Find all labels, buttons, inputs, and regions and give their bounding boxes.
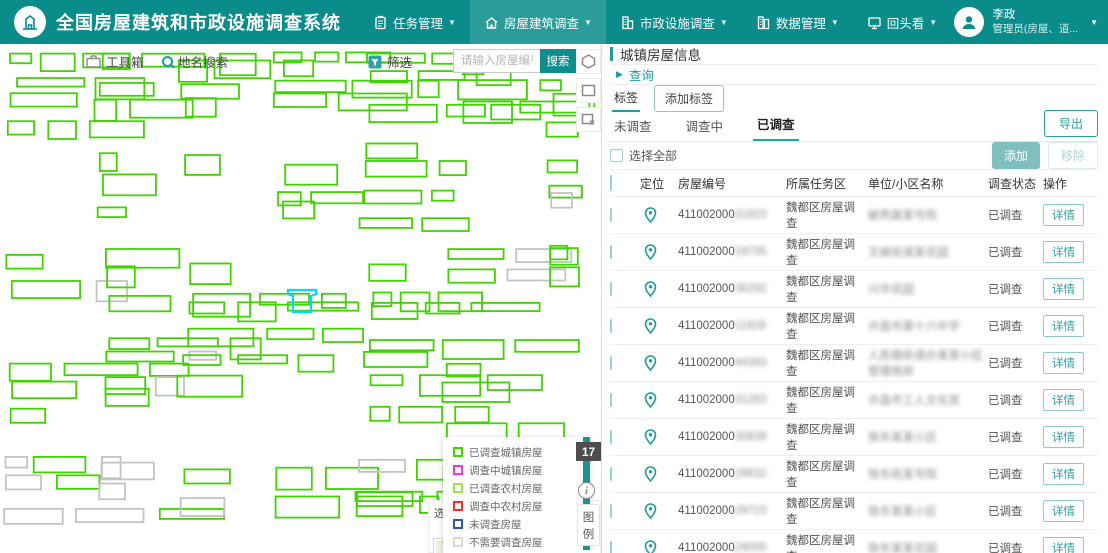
table-row: 41100200044393魏都区房屋调查人民路街道办某某小区管理用房已调查详情: [610, 345, 1098, 382]
tag-row: 标签 添加标签: [610, 85, 1098, 112]
locate-cell: [640, 279, 678, 299]
review-icon: [867, 15, 882, 30]
unit-name-cell: 文峰街道某花园: [868, 242, 988, 262]
chevron-down-icon: ▼: [720, 18, 728, 27]
location-pin-icon[interactable]: [640, 466, 676, 482]
nav-item-label: 房屋建筑调查: [504, 13, 579, 32]
details-button[interactable]: 详情: [1043, 315, 1084, 337]
house-info-panel: 城镇房屋信息 ▶ 查询 标签 添加标签 未调查 调查中 已调查 导出 选择全部 …: [602, 44, 1108, 553]
select-all-row: 选择全部 添加 移除: [610, 142, 1098, 169]
details-button[interactable]: 详情: [1043, 204, 1084, 226]
action-cell: 详情: [1043, 276, 1098, 302]
action-cell: 详情: [1043, 202, 1098, 228]
location-pin-icon[interactable]: [640, 244, 676, 260]
house-number-input[interactable]: [453, 49, 540, 73]
task-area-cell: 魏都区房屋调查: [786, 456, 868, 492]
table-row: 41100200036292魏都区房屋调查兴华花园已调查详情: [610, 271, 1098, 308]
row-checkbox-cell: [610, 503, 640, 519]
house-number-redacted: 30839: [735, 431, 767, 443]
details-button[interactable]: 详情: [1043, 426, 1084, 448]
details-button[interactable]: 详情: [1043, 352, 1084, 374]
status-cell: 已调查: [988, 501, 1043, 521]
legend-item-label: 调查中农村房屋: [469, 499, 543, 514]
column-header: 房屋编号: [678, 173, 786, 194]
legend-toggle-label: 图例: [583, 512, 595, 541]
locate-cell: [640, 390, 678, 410]
action-cell: 详情: [1043, 535, 1098, 553]
house-number-visible: 411002000: [678, 320, 735, 332]
action-cell: 详情: [1043, 498, 1098, 524]
app-header: 全国房屋建筑和市政设施调查系统 任务管理▼房屋建筑调查▼市政设施调查▼数据管理▼…: [0, 0, 1108, 44]
details-button[interactable]: 详情: [1043, 278, 1084, 300]
row-checkbox[interactable]: [610, 541, 612, 553]
house-number-redacted: 36292: [735, 283, 767, 295]
user-name: 李政: [992, 8, 1078, 22]
draw-rectangle-icon[interactable]: [576, 78, 601, 103]
task-area-cell: 魏都区房屋调查: [786, 382, 868, 418]
chevron-right-icon: ▶: [616, 69, 623, 80]
unit-name-cell: 铁东某某花园: [868, 538, 988, 553]
house-number-visible: 411002000: [678, 431, 735, 443]
location-pin-icon[interactable]: [640, 429, 676, 445]
locate-cell: [640, 316, 678, 336]
legend-swatch-icon: [453, 537, 463, 547]
unit-name-cell: 许昌市工人文化宫: [868, 390, 988, 410]
house-number-visible: 411002000: [678, 283, 735, 295]
action-cell: 详情: [1043, 461, 1098, 487]
toolbox-label: 工具箱: [106, 52, 144, 71]
main-nav: 任务管理▼房屋建筑调查▼市政设施调查▼数据管理▼回头看▼: [359, 0, 951, 44]
status-cell: 已调查: [988, 538, 1043, 553]
legend-swatch-icon: [453, 519, 463, 529]
tab-surveying[interactable]: 调查中: [682, 110, 728, 141]
table-row: 41100200031823魏都区房屋调查毓秀路某号院已调查详情: [610, 197, 1098, 234]
task-area-cell: 魏都区房屋调查: [786, 493, 868, 529]
filter-icon: [368, 55, 382, 69]
unit-name-cell: 许昌市第十六中学: [868, 316, 988, 336]
action-cell: 详情: [1043, 424, 1098, 450]
details-button[interactable]: 详情: [1043, 537, 1084, 553]
row-checkbox-cell: [610, 244, 640, 260]
add-tag-button[interactable]: 添加标签: [654, 85, 724, 112]
house-number-redacted: 29723: [735, 505, 767, 517]
row-checkbox[interactable]: [610, 504, 612, 518]
nav-item-2[interactable]: 市政设施调查▼: [606, 0, 742, 44]
legend-swatch-icon: [453, 447, 463, 457]
locate-cell: [640, 538, 678, 553]
action-cell: 详情: [1043, 350, 1098, 376]
location-pin-icon[interactable]: [640, 392, 676, 408]
house-number-cell: 41100200031283: [678, 392, 786, 408]
house-number-visible: 411002000: [678, 394, 735, 406]
nav-item-label: 回头看: [887, 13, 925, 32]
status-tabs: 未调查 调查中 已调查 导出: [610, 112, 1098, 142]
house-number-visible: 411002000: [678, 505, 735, 517]
action-cell: 详情: [1043, 239, 1098, 265]
row-checkbox-cell: [610, 207, 640, 223]
table-row: 41100200029723魏都区房屋调查铁东某某小区已调查详情: [610, 493, 1098, 530]
user-avatar-icon: [954, 7, 984, 37]
house-table: 定位房屋编号所属任务区单位/小区名称调查状态操作41100200031823魏都…: [610, 169, 1098, 553]
status-cell: 已调查: [988, 205, 1043, 225]
clear-selection-icon[interactable]: [576, 107, 601, 132]
column-header: 操作: [1043, 173, 1098, 194]
legend-swatch-icon: [453, 465, 463, 475]
house-number-cell: 41100200036292: [678, 281, 786, 297]
house-icon: [484, 15, 499, 30]
row-checkbox[interactable]: [610, 208, 612, 222]
house-number-redacted: 31823: [735, 209, 767, 221]
table-row: 41100200029000魏都区房屋调查铁东某某花园已调查详情: [610, 530, 1098, 553]
location-pin-icon[interactable]: [640, 540, 676, 553]
house-number-cell: 41100200031823: [678, 207, 786, 223]
column-header: 所属任务区: [786, 173, 868, 194]
house-number-cell: 41100200029000: [678, 540, 786, 553]
table-row: 41100200031283魏都区房屋调查许昌市工人文化宫已调查详情: [610, 382, 1098, 419]
house-number-visible: 411002000: [678, 357, 735, 369]
table-row: 41100200019735魏都区房屋调查文峰街道某花园已调查详情: [610, 234, 1098, 271]
task-area-cell: 魏都区房屋调查: [786, 234, 868, 270]
select-all-label: 选择全部: [629, 147, 677, 164]
tab-surveyed[interactable]: 已调查: [753, 108, 799, 141]
legend-item-label: 已调查城镇房屋: [469, 445, 543, 460]
filter-label: 筛选: [387, 52, 412, 71]
chevron-down-icon: ▼: [584, 18, 592, 27]
details-button[interactable]: 详情: [1043, 241, 1084, 263]
location-pin-icon[interactable]: [640, 318, 676, 334]
table-row: 41100200030839魏都区房屋调查铁东某某小区已调查详情: [610, 419, 1098, 456]
row-checkbox-cell: [610, 466, 640, 482]
nav-item-4[interactable]: 回头看▼: [853, 0, 951, 44]
status-cell: 已调查: [988, 316, 1043, 336]
legend-item: 未调查房屋: [453, 515, 586, 533]
house-number-cell: 41100200019735: [678, 244, 786, 260]
locate-cell: [640, 464, 678, 484]
house-number-cell: 41100200044393: [678, 355, 786, 371]
nav-item-1[interactable]: 房屋建筑调查▼: [470, 0, 606, 44]
tab-tags[interactable]: 标签: [612, 85, 640, 112]
details-button[interactable]: 详情: [1043, 463, 1084, 485]
app-logo-icon: [14, 6, 46, 38]
column-header: 定位: [640, 173, 678, 194]
house-number-redacted: 31283: [735, 394, 767, 406]
task-area-cell: 魏都区房屋调查: [786, 345, 868, 381]
house-number-visible: 411002000: [678, 209, 735, 221]
unit-name-cell: 人民路街道办某某小区管理用房: [868, 345, 988, 381]
row-checkbox[interactable]: [610, 319, 612, 333]
database-icon: [756, 15, 771, 30]
house-number-redacted: 29632: [735, 468, 767, 480]
house-number-visible: 411002000: [678, 246, 735, 258]
action-cell: 详情: [1043, 387, 1098, 413]
place-search-button[interactable]: 地名搜索: [162, 52, 228, 71]
query-expander[interactable]: ▶ 查询: [610, 65, 1098, 85]
toolbox-button[interactable]: 工具箱: [86, 52, 144, 71]
status-cell: 已调查: [988, 464, 1043, 484]
remove-button[interactable]: 移除: [1048, 142, 1098, 169]
locate-cell: [640, 205, 678, 225]
nav-item-3[interactable]: 数据管理▼: [742, 0, 853, 44]
table-row: 41100200011928魏都区房屋调查许昌市第十六中学已调查详情: [610, 308, 1098, 345]
app-title: 全国房屋建筑和市政设施调查系统: [56, 9, 341, 35]
user-menu[interactable]: 李政 管理员(房屋、道... ▼: [954, 7, 1098, 37]
nav-item-label: 数据管理: [776, 13, 826, 32]
add-button[interactable]: 添加: [992, 142, 1040, 169]
legend-item-label: 未调查房屋: [469, 517, 522, 532]
select-all-checkbox[interactable]: [610, 149, 623, 162]
house-number-redacted: 19735: [735, 246, 767, 258]
row-checkbox-cell: [610, 355, 640, 371]
chevron-down-icon: ▼: [448, 18, 456, 27]
row-checkbox[interactable]: [610, 393, 612, 407]
query-label: 查询: [629, 65, 654, 84]
header-checkbox[interactable]: [610, 175, 612, 191]
zoom-level-badge: 17: [576, 442, 601, 461]
chevron-down-icon: ▼: [831, 18, 839, 27]
row-checkbox[interactable]: [610, 282, 612, 296]
status-cell: 已调查: [988, 390, 1043, 410]
row-checkbox-cell: [610, 318, 640, 334]
task-area-cell: 魏都区房屋调查: [786, 419, 868, 455]
task-area-cell: 魏都区房屋调查: [786, 197, 868, 233]
location-pin-icon[interactable]: [640, 503, 676, 519]
task-area-cell: 魏都区房屋调查: [786, 530, 868, 553]
unit-name-cell: 铁东某某小区: [868, 427, 988, 447]
house-number-cell: 41100200029632: [678, 466, 786, 482]
house-number-cell: 41100200030839: [678, 429, 786, 445]
legend-swatch-icon: [453, 501, 463, 511]
legend-swatch-icon: [453, 483, 463, 493]
facility-icon: [620, 15, 635, 30]
legend-item-label: 已调查农村房屋: [469, 481, 543, 496]
house-number-visible: 411002000: [678, 468, 735, 480]
header-checkbox-cell: [610, 174, 640, 192]
nav-item-label: 任务管理: [393, 13, 443, 32]
status-cell: 已调查: [988, 353, 1043, 373]
toolbox-icon: [86, 55, 101, 68]
table-header-row: 定位房屋编号所属任务区单位/小区名称调查状态操作: [610, 170, 1098, 197]
filter-button[interactable]: 筛选: [368, 52, 412, 71]
info-icon[interactable]: i: [578, 482, 595, 499]
row-checkbox[interactable]: [610, 467, 612, 481]
house-number-redacted: 29000: [735, 542, 767, 553]
place-search-label: 地名搜索: [178, 52, 228, 71]
map-legend-panel: 已调查城镇房屋调查中城镇房屋已调查农村房屋调查中农村房屋未调查房屋不需要调查房屋: [443, 437, 590, 553]
locate-cell: [640, 501, 678, 521]
location-pin-icon[interactable]: [640, 207, 676, 223]
tab-not-surveyed[interactable]: 未调查: [610, 110, 656, 141]
unit-name-cell: 毓秀路某号院: [868, 205, 988, 225]
house-number-cell: 41100200029723: [678, 503, 786, 519]
locate-cell: [640, 242, 678, 262]
status-cell: 已调查: [988, 279, 1043, 299]
house-number-cell: 41100200011928: [678, 318, 786, 334]
legend-item: 已调查农村房屋: [453, 479, 586, 497]
legend-item: 调查中城镇房屋: [453, 461, 586, 479]
draw-tools: [576, 49, 601, 132]
details-button[interactable]: 详情: [1043, 389, 1084, 411]
status-cell: 已调查: [988, 427, 1043, 447]
unit-name-cell: 铁东某某小区: [868, 501, 988, 521]
legend-item: 不需要调查房屋: [453, 533, 586, 551]
title-accent-bar: [610, 47, 613, 61]
status-cell: 已调查: [988, 242, 1043, 262]
column-header: 调查状态: [988, 173, 1043, 194]
export-button[interactable]: 导出: [1044, 110, 1098, 137]
house-number-redacted: 44393: [735, 357, 767, 369]
location-pin-icon[interactable]: [640, 281, 676, 297]
task-area-cell: 魏都区房屋调查: [786, 271, 868, 307]
search-icon: [162, 56, 173, 67]
house-number-redacted: 11928: [735, 320, 766, 332]
draw-polygon-icon[interactable]: [576, 49, 601, 74]
chevron-down-icon: ▼: [929, 18, 937, 27]
panel-title-row: 城镇房屋信息: [610, 44, 1098, 65]
row-checkbox-cell: [610, 540, 640, 553]
map-search-button[interactable]: 搜索: [540, 49, 576, 73]
row-checkbox-cell: [610, 429, 640, 445]
nav-item-0[interactable]: 任务管理▼: [359, 0, 470, 44]
table-row: 41100200029632魏都区房屋调查铁东街某号院已调查详情: [610, 456, 1098, 493]
location-pin-icon[interactable]: [640, 355, 676, 371]
legend-item: 已调查城镇房屋: [453, 443, 586, 461]
nav-item-label: 市政设施调查: [640, 13, 715, 32]
legend-toggle-button[interactable]: 图例: [577, 504, 600, 546]
house-number-visible: 411002000: [678, 542, 735, 553]
row-checkbox-cell: [610, 281, 640, 297]
legend-item-label: 调查中城镇房屋: [469, 463, 543, 478]
user-caret-icon: ▼: [1090, 18, 1098, 27]
details-button[interactable]: 详情: [1043, 500, 1084, 522]
row-checkbox[interactable]: [610, 245, 612, 259]
row-checkbox-cell: [610, 392, 640, 408]
locate-cell: [640, 353, 678, 373]
map-canvas[interactable]: 工具箱 地名搜索 筛选 搜索: [0, 44, 602, 553]
clipboard-icon: [373, 15, 388, 30]
row-checkbox[interactable]: [610, 356, 612, 370]
task-area-cell: 魏都区房屋调查: [786, 308, 868, 344]
legend-item-label: 不需要调查房屋: [469, 535, 543, 550]
unit-name-cell: 兴华花园: [868, 279, 988, 299]
legend-item: 调查中农村房屋: [453, 497, 586, 515]
column-header: 单位/小区名称: [868, 173, 988, 194]
unit-name-cell: 铁东街某号院: [868, 464, 988, 484]
user-role: 管理员(房屋、道...: [992, 23, 1078, 36]
panel-title: 城镇房屋信息: [620, 44, 701, 64]
locate-cell: [640, 427, 678, 447]
house-number-search: 搜索: [453, 49, 576, 73]
action-cell: 详情: [1043, 313, 1098, 339]
row-checkbox[interactable]: [610, 430, 612, 444]
